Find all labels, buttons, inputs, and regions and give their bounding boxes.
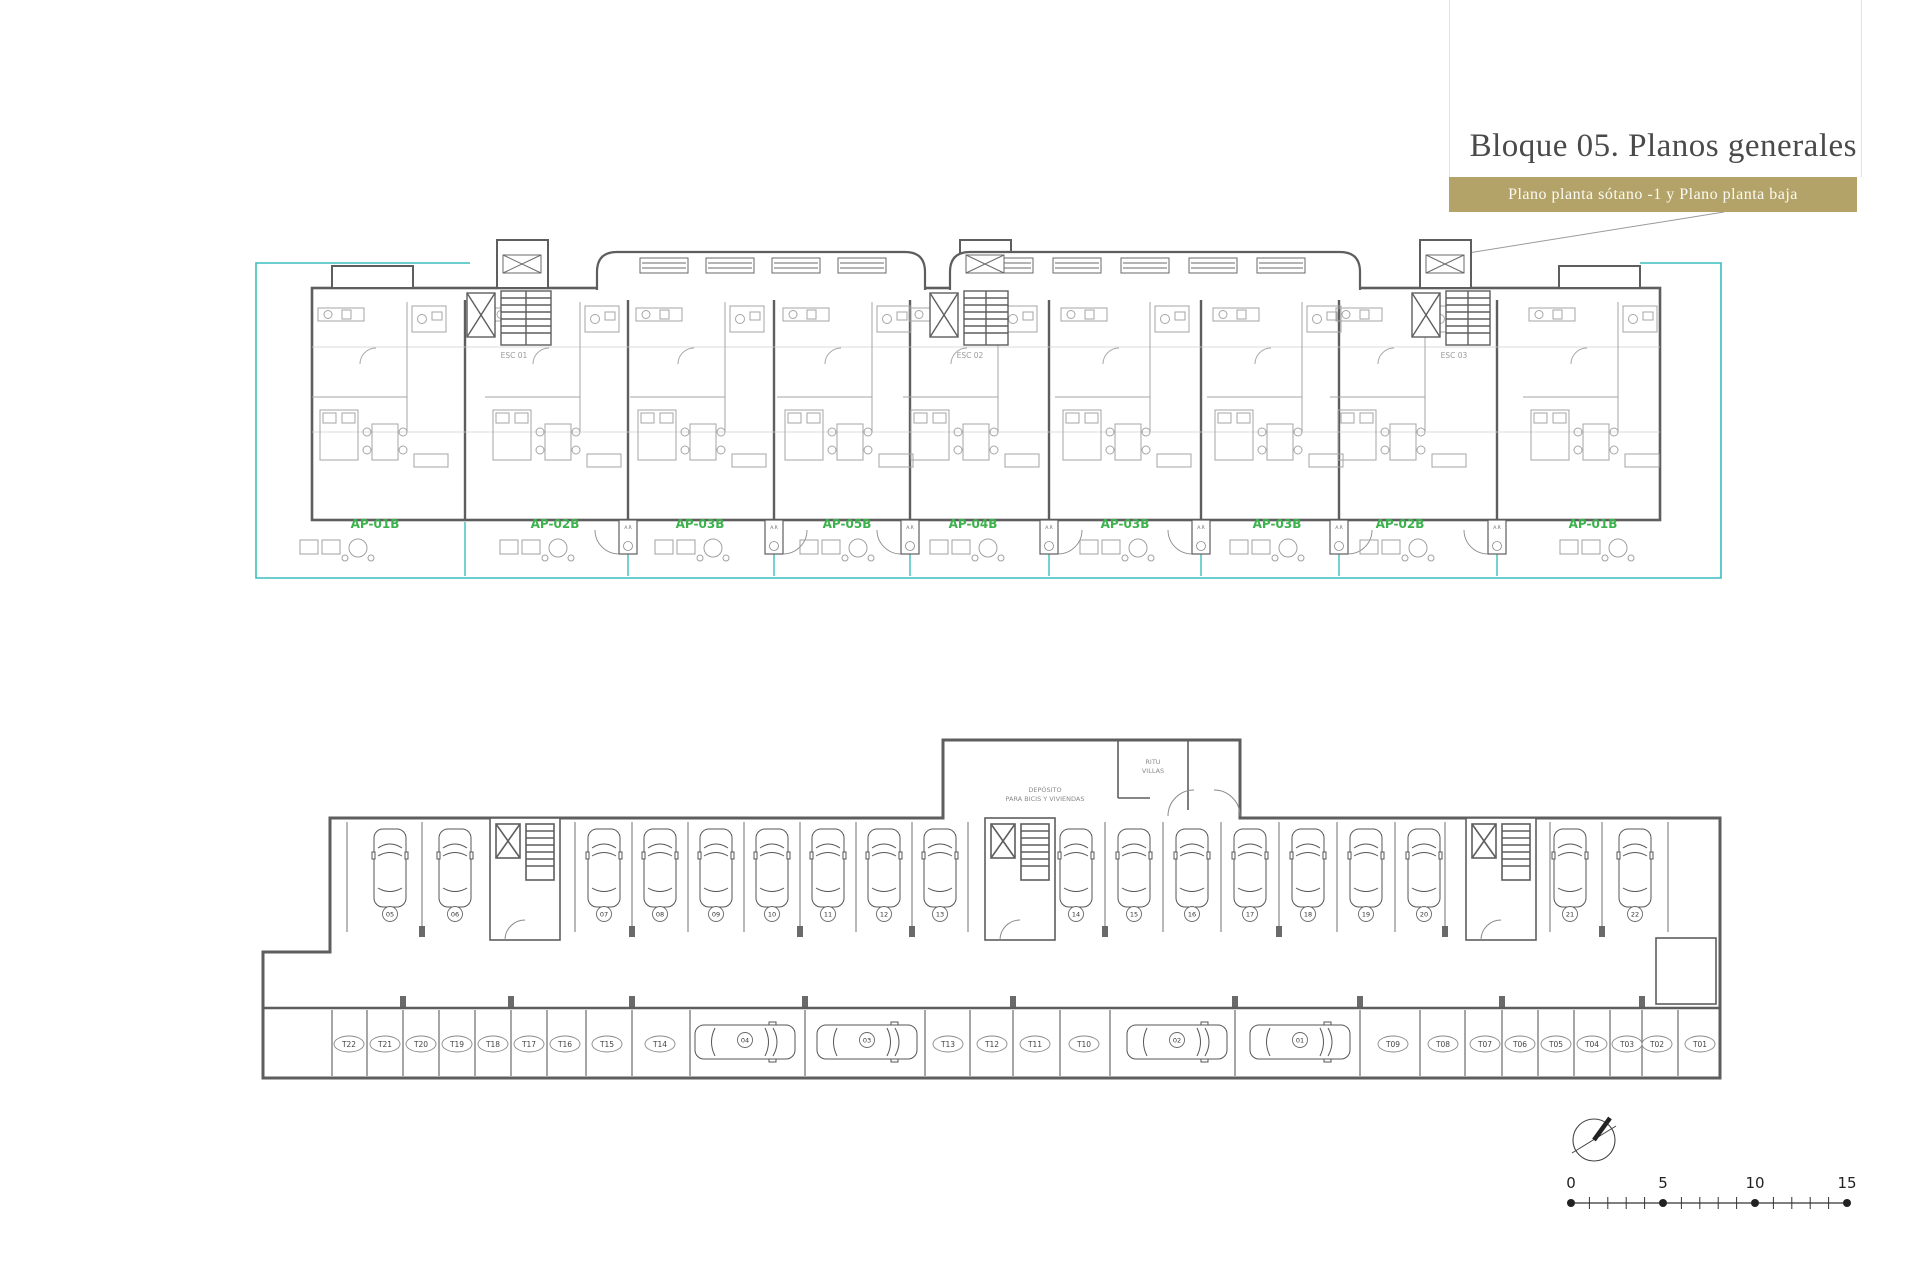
parking-number: 13 [936, 911, 944, 919]
terrace-furniture [1080, 539, 1154, 561]
parking-number: 05 [386, 911, 394, 919]
parking-number: 19 [1362, 911, 1370, 919]
stair-label-3: ESC 03 [1441, 351, 1468, 360]
riser-label: A.R [624, 525, 632, 531]
parking-number: 18 [1304, 911, 1312, 919]
storage-label: T11 [1027, 1040, 1042, 1049]
ground-floor-plan: ESC 01 ESC 02 ESC 03 A.R A.R A [256, 212, 1724, 578]
storage-label: T01 [1692, 1040, 1707, 1049]
ramp-room [1656, 938, 1716, 1004]
vent-grille [706, 258, 754, 273]
terrace-furniture [1560, 539, 1634, 561]
parking-number: 21 [1566, 911, 1574, 919]
terrace-furniture [300, 539, 374, 561]
parking-number: 10 [768, 911, 776, 919]
storage-label: T03 [1619, 1040, 1634, 1049]
scale-bar: 0 5 10 15 [1566, 1174, 1856, 1209]
stair-core-3 [1412, 291, 1490, 345]
parking-number: 11 [824, 911, 832, 919]
parking-number: 03 [863, 1037, 871, 1045]
storage-label: T06 [1512, 1040, 1527, 1049]
storage-label: T16 [557, 1040, 572, 1049]
apartment-label: AP-03B [1101, 517, 1150, 531]
storage-label: T12 [984, 1040, 999, 1049]
riser-boxes: A.R A.R A.R A.R A.R A.R A.R [595, 520, 1506, 554]
storage-label: T05 [1548, 1040, 1563, 1049]
parking-number: 09 [712, 911, 720, 919]
parking-number: 15 [1130, 911, 1138, 919]
basement-stair-core-1 [490, 818, 560, 940]
deposit-label-line1: DEPÓSITO [1028, 785, 1061, 794]
terrace-furniture [655, 539, 729, 561]
scale-tick-15: 15 [1837, 1174, 1856, 1192]
terrace-furniture [500, 539, 574, 561]
vent-grille [640, 258, 688, 273]
right-end-block [1559, 266, 1640, 288]
riser-label: A.R [1197, 525, 1205, 531]
scale-tick-5: 5 [1658, 1174, 1668, 1192]
riser-label: A.R [1493, 525, 1501, 531]
ritu-label-line1: RITU [1145, 758, 1160, 766]
storage-label: T04 [1584, 1040, 1599, 1049]
riser-label: A.R [770, 525, 778, 531]
basement-plan: DEPÓSITO PARA BICIS Y VIVIENDAS RITU VIL… [263, 740, 1720, 1078]
storage-label: T14 [652, 1040, 667, 1049]
vent-grille [1257, 258, 1305, 273]
riser-label: A.R [906, 525, 914, 531]
apartment-label: AP-01B [351, 517, 400, 531]
north-indicator [1572, 1118, 1616, 1161]
vent-grille [838, 258, 886, 273]
ritu-label-line2: VILLAS [1142, 767, 1164, 775]
parking-number: 01 [1296, 1037, 1304, 1045]
x-vent [503, 255, 541, 273]
leader-line [1437, 212, 1724, 258]
storage-label: T19 [449, 1040, 464, 1049]
basement-stair-core-3 [1466, 818, 1536, 940]
stair-label-2: ESC 02 [957, 351, 984, 360]
parking-number: 07 [600, 911, 608, 919]
storage-label: T15 [599, 1040, 614, 1049]
storage-label: T09 [1385, 1040, 1400, 1049]
stair-core-1 [467, 291, 551, 345]
storage-label: T21 [377, 1040, 392, 1049]
parking-number: 20 [1420, 911, 1428, 919]
plan-sheet: { "header": { "title": "Bloque 05. Plano… [0, 0, 1920, 1280]
storage-label: T22 [341, 1040, 356, 1049]
storage-label: T20 [413, 1040, 428, 1049]
apartment-label: AP-04B [949, 517, 998, 531]
x-vent [1426, 255, 1464, 273]
parking-number: 02 [1173, 1037, 1181, 1045]
parking-number: 14 [1072, 911, 1080, 919]
vent-grille [772, 258, 820, 273]
storage-label: T13 [940, 1040, 955, 1049]
apartment-label: AP-03B [676, 517, 725, 531]
parking-number: 04 [741, 1037, 749, 1045]
storage-label: T18 [485, 1040, 500, 1049]
riser-label: A.R [1045, 525, 1053, 531]
scale-tick-10: 10 [1745, 1174, 1764, 1192]
storage-label: T02 [1649, 1040, 1664, 1049]
riser-label: A.R [1335, 525, 1343, 531]
terrace-furniture [1360, 539, 1434, 561]
parking-number: 16 [1188, 911, 1196, 919]
terrace-furniture [930, 539, 1004, 561]
parking-number: 12 [880, 911, 888, 919]
apartment-label: AP-05B [823, 517, 872, 531]
terrace-furniture [800, 539, 874, 561]
storage-label: T10 [1076, 1040, 1091, 1049]
parking-number: 17 [1246, 911, 1254, 919]
apartment-label: AP-02B [1376, 517, 1425, 531]
stair-label-1: ESC 01 [501, 351, 528, 360]
storage-label: T08 [1435, 1040, 1450, 1049]
deposit-label-line2: PARA BICIS Y VIVIENDAS [1006, 795, 1085, 803]
terrace-furniture [1230, 539, 1304, 561]
vent-grille [1189, 258, 1237, 273]
apartment-label: AP-02B [531, 517, 580, 531]
apartment-label: AP-01B [1569, 517, 1618, 531]
scale-tick-0: 0 [1566, 1174, 1576, 1192]
x-vent [966, 255, 1004, 273]
left-end-block [332, 266, 413, 288]
parking-number: 08 [656, 911, 664, 919]
storage-label: T07 [1477, 1040, 1492, 1049]
storage-label: T17 [521, 1040, 536, 1049]
stair-core-2 [930, 291, 1008, 345]
drawing-canvas: ESC 01 ESC 02 ESC 03 A.R A.R A [0, 0, 1920, 1280]
vent-grille [1053, 258, 1101, 273]
vent-grille [1121, 258, 1169, 273]
parking-number: 06 [451, 911, 459, 919]
parking-number: 22 [1631, 911, 1639, 919]
basement-stair-core-2 [985, 818, 1055, 940]
apartment-label: AP-03B [1253, 517, 1302, 531]
